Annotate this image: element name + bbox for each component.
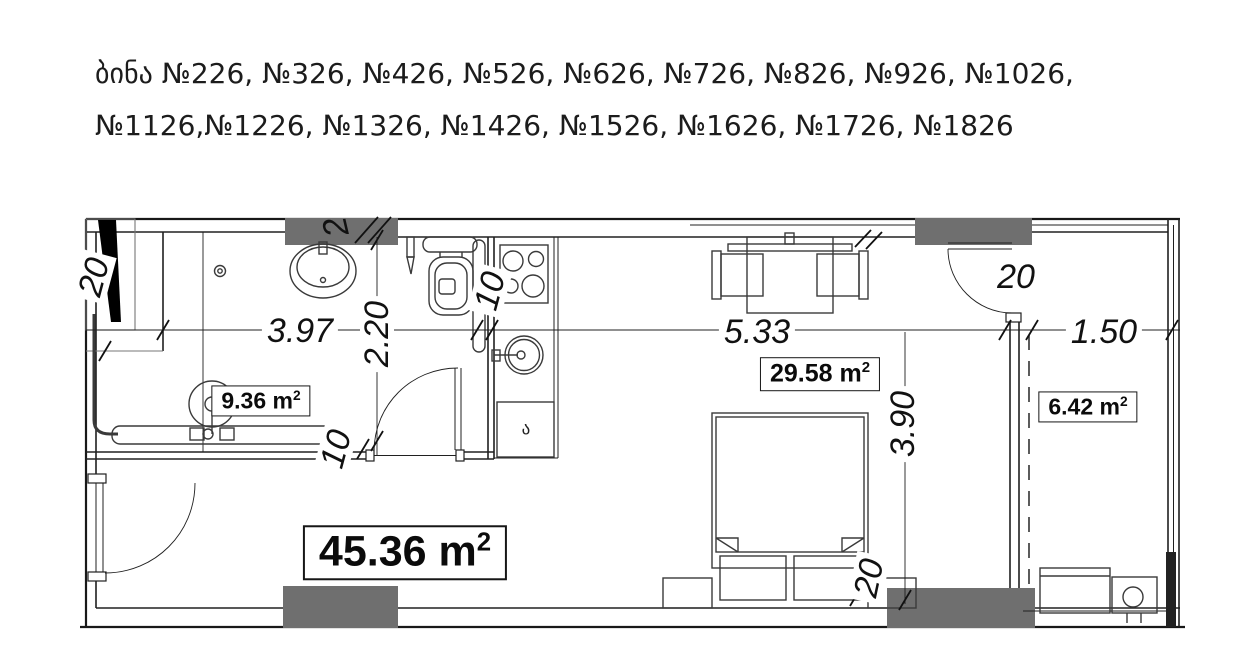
washbasin-drain [321, 278, 326, 283]
balcony-furniture [1023, 568, 1168, 623]
dim-balcony-width: 1.50 [1066, 315, 1142, 349]
balcony-unit-legs [1127, 613, 1141, 623]
dining-table [747, 237, 833, 313]
balcony-partition-wall [1010, 322, 1019, 588]
area-total: 45.36 m2 [303, 525, 507, 580]
bed-frame [712, 413, 868, 568]
area-balcony: 6.42 m2 [1038, 391, 1137, 422]
burner [529, 252, 544, 267]
toilet-tank [423, 237, 477, 252]
blanket-fold [716, 538, 864, 552]
water-valve-tip [407, 257, 414, 274]
area-bedroom-sup: 2 [862, 359, 870, 376]
pillow [720, 556, 786, 600]
kitchen-tap-head [517, 351, 525, 359]
dim-bed-side-gap: 20 [847, 551, 890, 605]
chair-back [712, 251, 721, 299]
burner [503, 251, 523, 271]
dim-bathroom-width: 3.97 [262, 314, 338, 348]
bathroom-door-leaf [455, 368, 461, 450]
dining-set [712, 233, 868, 313]
floor-plan-page: ბინა №226, №326, №426, №526, №626, №726,… [0, 0, 1253, 654]
toilet-joint [440, 252, 462, 257]
area-bathroom-sup: 2 [293, 388, 301, 403]
chair-seat [721, 254, 763, 296]
chair-back [859, 251, 868, 299]
washbasin-bowl [297, 247, 349, 287]
balcony-unit-dial [1123, 587, 1143, 607]
dim-bedroom-width: 5.33 [719, 315, 795, 349]
area-bathroom: 9.36 m2 [211, 385, 310, 416]
door-jamb [456, 450, 464, 461]
area-bathroom-value: 9.36 m [221, 387, 293, 413]
area-bedroom: 29.58 m2 [760, 357, 880, 391]
door-jamb [1006, 313, 1021, 322]
area-total-sup: 2 [477, 528, 491, 556]
kitchen-cabinet-letter: ა [522, 419, 531, 439]
dim-bathroom-depth: 2.20 [360, 296, 394, 372]
chair-seat [817, 254, 859, 296]
column-bottom-left [283, 586, 398, 628]
balcony-pier [1166, 552, 1176, 627]
washbasin [290, 244, 356, 298]
door-jamb [366, 450, 374, 461]
shower-faucet [190, 428, 204, 440]
dim-bedroom-depth: 3.90 [886, 386, 920, 462]
area-total-value: 45.36 m [319, 528, 477, 576]
entry-door-swing [105, 483, 195, 573]
dim-balcony-door-wall: 20 [992, 260, 1040, 294]
bed-mattress [716, 417, 864, 552]
area-bedroom-value: 29.58 m [770, 360, 862, 388]
floor-drain [215, 266, 226, 277]
dining-table-stem [785, 233, 794, 244]
entry-door-leaf [96, 483, 103, 572]
area-balcony-sup: 2 [1120, 394, 1128, 409]
shower-rail [94, 314, 118, 434]
burner [522, 275, 544, 297]
floor-drain-center [218, 269, 222, 273]
balcony-bench [1040, 568, 1110, 613]
column-top-right [915, 218, 1032, 245]
area-balcony-value: 6.42 m [1048, 393, 1120, 419]
water-valve [407, 237, 414, 257]
shower-faucet [220, 428, 234, 440]
toilet-flush [439, 279, 455, 294]
nightstand [663, 578, 712, 608]
entry-jamb [88, 572, 106, 581]
bathroom-door-swing [374, 368, 458, 452]
shower-tray [112, 426, 342, 444]
toilet-bowl-inner [435, 263, 467, 309]
entry-jamb [88, 474, 106, 483]
